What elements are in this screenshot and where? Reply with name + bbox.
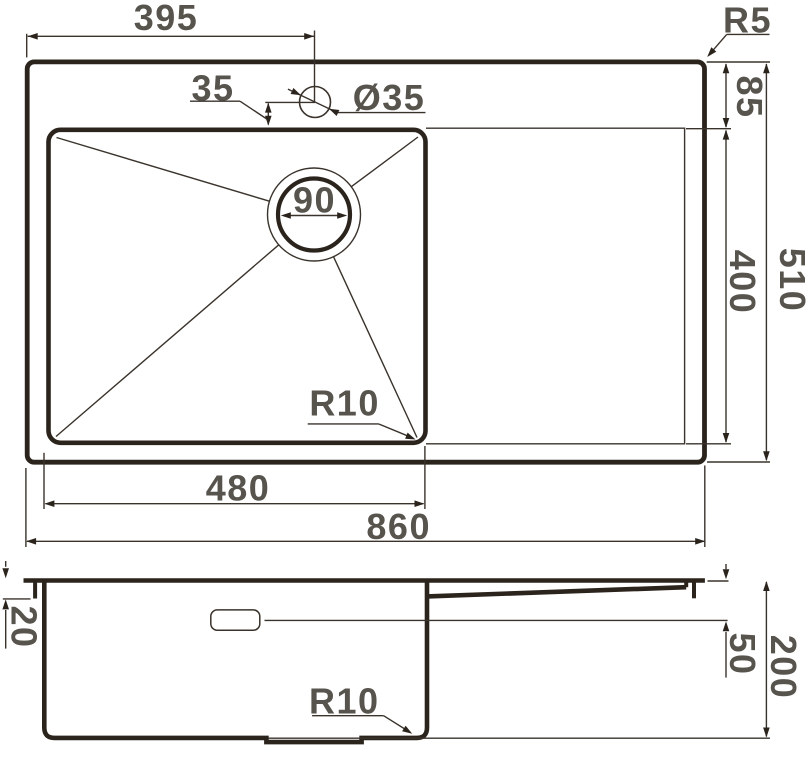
svg-text:860: 860 <box>366 506 431 547</box>
svg-text:50: 50 <box>722 632 763 675</box>
svg-text:R10: R10 <box>309 383 380 424</box>
svg-text:400: 400 <box>722 250 763 315</box>
svg-text:85: 85 <box>729 75 770 118</box>
svg-text:Ø35: Ø35 <box>353 77 426 118</box>
svg-text:R10: R10 <box>309 681 380 722</box>
svg-text:35: 35 <box>191 67 234 108</box>
svg-text:R5: R5 <box>723 0 772 41</box>
svg-text:510: 510 <box>772 248 812 313</box>
svg-text:395: 395 <box>134 0 199 38</box>
svg-text:20: 20 <box>4 605 45 648</box>
svg-text:90: 90 <box>293 180 336 221</box>
svg-text:200: 200 <box>763 635 804 700</box>
svg-text:480: 480 <box>206 468 271 509</box>
